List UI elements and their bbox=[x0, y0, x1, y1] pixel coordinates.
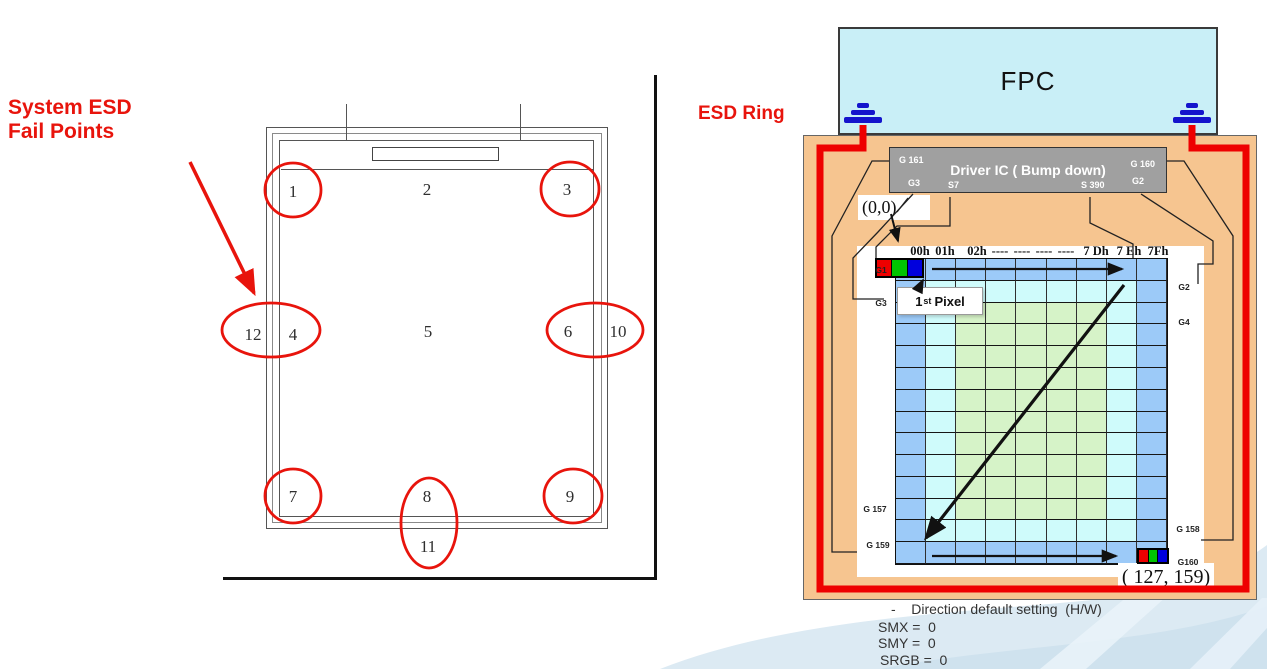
pixel-cell bbox=[1137, 412, 1167, 434]
pin-label-s7: S7 bbox=[948, 180, 959, 190]
pixel-cell bbox=[956, 368, 986, 390]
pin-label-g2: G2 bbox=[1132, 176, 1144, 186]
pixel-cell bbox=[1137, 520, 1167, 542]
col-header-----: ---- bbox=[1014, 244, 1031, 259]
pixel-cell bbox=[1107, 390, 1137, 412]
pixel-cell bbox=[1016, 303, 1046, 325]
pixel-cell bbox=[926, 477, 956, 499]
pixel-cell bbox=[1047, 542, 1077, 564]
wash-streak bbox=[1190, 598, 1267, 669]
ground-icon bbox=[857, 103, 869, 108]
first-pixel-word: Pixel bbox=[934, 294, 964, 309]
pixel-cell bbox=[1077, 412, 1107, 434]
pixel-cell bbox=[1107, 542, 1137, 564]
pixel-cell bbox=[926, 259, 956, 281]
origin-label: (0,0) bbox=[862, 197, 897, 218]
pixel-cell bbox=[1137, 346, 1167, 368]
first-pixel-callout: 1st Pixel bbox=[897, 287, 983, 315]
pixel-cell bbox=[926, 324, 956, 346]
pixel-cell bbox=[1016, 455, 1046, 477]
fail-point-number-11: 11 bbox=[420, 537, 436, 557]
pixel-cell bbox=[1016, 433, 1046, 455]
pixel-cell bbox=[926, 433, 956, 455]
pixel-cell bbox=[1047, 433, 1077, 455]
pixel-cell bbox=[1016, 520, 1046, 542]
speaker-slot bbox=[372, 147, 499, 161]
pixel-cell bbox=[1077, 477, 1107, 499]
pixel-cell bbox=[986, 433, 1016, 455]
col-header-01h: 01h bbox=[935, 244, 954, 259]
col-header-7 Dh: 7 Dh bbox=[1083, 244, 1108, 259]
module-top-tab bbox=[346, 104, 347, 141]
pixel-cell bbox=[1107, 346, 1137, 368]
pixel-cell bbox=[896, 368, 926, 390]
fail-point-number-2: 2 bbox=[423, 180, 432, 200]
pixel-cell bbox=[1077, 455, 1107, 477]
pixel-cell bbox=[986, 281, 1016, 303]
row-label-right-3: G160 bbox=[1178, 557, 1199, 567]
pixel-cell bbox=[956, 324, 986, 346]
ground-icon bbox=[1186, 103, 1198, 108]
pixel-cell bbox=[1137, 259, 1167, 281]
pin-label-g3: G3 bbox=[908, 178, 920, 188]
pixel-cell bbox=[896, 542, 926, 564]
separator-horizontal-line bbox=[223, 577, 657, 580]
pixel-cell bbox=[956, 412, 986, 434]
pixel-cell bbox=[1047, 303, 1077, 325]
pixel-cell bbox=[1107, 520, 1137, 542]
title-line2: Fail Points bbox=[8, 120, 114, 143]
separator-vertical-line bbox=[654, 75, 657, 580]
pixel-cell bbox=[956, 455, 986, 477]
pixel-cell bbox=[1137, 281, 1167, 303]
pixel-cell bbox=[986, 303, 1016, 325]
note-smy: SMY = 0 bbox=[878, 635, 936, 651]
pixel-cell bbox=[1047, 324, 1077, 346]
pixel-cell bbox=[956, 499, 986, 521]
pixel-cell bbox=[986, 346, 1016, 368]
pixel-cell bbox=[896, 433, 926, 455]
pixel-cell bbox=[1016, 412, 1046, 434]
pixel-cell bbox=[1137, 390, 1167, 412]
pixel-cell bbox=[1047, 259, 1077, 281]
pixel-cell bbox=[1047, 281, 1077, 303]
driver-ic-block: Driver IC ( Bump down) G 161 G 160 G3 S7… bbox=[889, 147, 1167, 193]
pixel-cell bbox=[1137, 477, 1167, 499]
pixel-cell bbox=[986, 259, 1016, 281]
pixel-cell bbox=[986, 412, 1016, 434]
pixel-cell bbox=[1016, 324, 1046, 346]
pixel-cell bbox=[1077, 433, 1107, 455]
row-label-left-0: G1 bbox=[875, 265, 886, 275]
pixel-cell bbox=[986, 368, 1016, 390]
pixel-cell bbox=[896, 499, 926, 521]
pixel-cell bbox=[1137, 368, 1167, 390]
pixel-cell bbox=[1047, 346, 1077, 368]
col-header-7Fh: 7Fh bbox=[1148, 244, 1169, 259]
row-label-left-2: G 157 bbox=[863, 504, 886, 514]
module-top-divider bbox=[281, 169, 593, 170]
pixel-cell bbox=[1077, 324, 1107, 346]
esd-ring-label: ESD Ring bbox=[698, 103, 785, 125]
pixel-cell bbox=[1077, 520, 1107, 542]
pixel-cell bbox=[1047, 499, 1077, 521]
ground-icon bbox=[844, 117, 882, 123]
pixel-cell bbox=[1047, 477, 1077, 499]
fail-points-arrow bbox=[190, 162, 254, 293]
col-header-02h: 02h bbox=[967, 244, 986, 259]
row-label-left-3: G 159 bbox=[866, 540, 889, 550]
pin-label-g161: G 161 bbox=[899, 155, 924, 165]
pixel-cell bbox=[1107, 259, 1137, 281]
subpixel-green bbox=[1148, 550, 1158, 562]
ground-icon bbox=[1180, 110, 1204, 115]
left-title: System ESD Fail Points bbox=[8, 96, 132, 144]
module-inner-panel bbox=[279, 140, 594, 517]
fail-point-number-5: 5 bbox=[424, 322, 433, 342]
pixel-cell bbox=[1077, 259, 1107, 281]
pixel-cell bbox=[1107, 303, 1137, 325]
note-smx: SMX = 0 bbox=[878, 619, 936, 635]
pixel-cell bbox=[1047, 368, 1077, 390]
fpc-label: FPC bbox=[1001, 66, 1056, 97]
subpixel-red bbox=[1139, 550, 1148, 562]
fail-point-number-10: 10 bbox=[610, 322, 627, 342]
fpc-block: FPC bbox=[838, 27, 1218, 135]
pixel-cell bbox=[1107, 281, 1137, 303]
col-header-----: ---- bbox=[1058, 244, 1075, 259]
pixel-cell bbox=[1137, 455, 1167, 477]
pixel-cell bbox=[896, 346, 926, 368]
subpixel-blue bbox=[1157, 550, 1167, 562]
row-label-right-1: G4 bbox=[1178, 317, 1189, 327]
module-top-tab bbox=[520, 104, 521, 141]
pixel-cell bbox=[926, 346, 956, 368]
pin-label-g160: G 160 bbox=[1130, 159, 1155, 169]
pixel-cell bbox=[1107, 455, 1137, 477]
pixel-cell bbox=[1137, 499, 1167, 521]
pixel-cell bbox=[896, 455, 926, 477]
pixel-cell bbox=[1077, 281, 1107, 303]
first-pixel-num: 1 bbox=[915, 294, 922, 309]
pin-label-s390: S 390 bbox=[1081, 180, 1105, 190]
pixel-cell bbox=[1016, 368, 1046, 390]
pixel-cell bbox=[1137, 324, 1167, 346]
fail-point-number-6: 6 bbox=[564, 322, 573, 342]
pixel-cell bbox=[926, 542, 956, 564]
pixel-cell bbox=[986, 542, 1016, 564]
subpixel-green bbox=[891, 260, 906, 276]
pixel-cell bbox=[926, 455, 956, 477]
pixel-cell bbox=[956, 433, 986, 455]
ground-icon bbox=[1173, 117, 1211, 123]
pixel-cell bbox=[1047, 390, 1077, 412]
pixel-cell bbox=[956, 390, 986, 412]
pixel-cell bbox=[986, 390, 1016, 412]
col-header-00h: 00h bbox=[910, 244, 929, 259]
ground-icon bbox=[851, 110, 875, 115]
pixel-cell bbox=[926, 520, 956, 542]
pixel-cell bbox=[1107, 477, 1137, 499]
col-header-----: ---- bbox=[992, 244, 1009, 259]
pixel-cell bbox=[1047, 455, 1077, 477]
note-direction: - Direction default setting (H/W) bbox=[891, 601, 1102, 617]
pixel-cell bbox=[956, 259, 986, 281]
driver-ic-label: Driver IC ( Bump down) bbox=[950, 162, 1106, 178]
pixel-cell bbox=[1077, 390, 1107, 412]
end-coordinate-label: ( 127, 159) bbox=[1118, 563, 1214, 592]
pixel-cell bbox=[1107, 499, 1137, 521]
pixel-cell bbox=[986, 324, 1016, 346]
pixel-cell bbox=[1107, 368, 1137, 390]
slide-canvas: System ESD Fail Points ESD Ring FPC Driv… bbox=[0, 0, 1267, 669]
fail-point-number-12: 12 bbox=[245, 325, 262, 345]
pixel-cell bbox=[896, 520, 926, 542]
pixel-cell bbox=[986, 455, 1016, 477]
fail-point-number-1: 1 bbox=[289, 182, 298, 202]
last-pixel-rgb bbox=[1137, 548, 1169, 564]
subpixel-blue bbox=[907, 260, 922, 276]
pixel-cell bbox=[956, 520, 986, 542]
pixel-cell bbox=[896, 477, 926, 499]
pixel-cell bbox=[1016, 499, 1046, 521]
pixel-cell bbox=[1077, 346, 1107, 368]
pixel-cell bbox=[956, 477, 986, 499]
pixel-cell bbox=[926, 368, 956, 390]
fail-point-number-3: 3 bbox=[563, 180, 572, 200]
pixel-cell bbox=[926, 412, 956, 434]
col-header-7 Eh: 7 Eh bbox=[1117, 244, 1142, 259]
title-line1: System ESD bbox=[8, 96, 132, 119]
pixel-cell bbox=[926, 499, 956, 521]
pixel-cell bbox=[896, 412, 926, 434]
pixel-cell bbox=[1077, 499, 1107, 521]
pixel-cell bbox=[1137, 303, 1167, 325]
pixel-cell bbox=[1016, 542, 1046, 564]
fail-point-number-7: 7 bbox=[289, 487, 298, 507]
pixel-cell bbox=[986, 520, 1016, 542]
note-srgb: SRGB = 0 bbox=[880, 652, 947, 668]
fail-point-number-4: 4 bbox=[289, 325, 298, 345]
row-label-left-1: G3 bbox=[875, 298, 886, 308]
pixel-cell bbox=[956, 542, 986, 564]
pixel-cell bbox=[1107, 433, 1137, 455]
pixel-cell bbox=[1077, 542, 1107, 564]
row-label-right-0: G2 bbox=[1178, 282, 1189, 292]
pixel-cell bbox=[1016, 259, 1046, 281]
pixel-cell bbox=[926, 390, 956, 412]
pixel-cell bbox=[1047, 520, 1077, 542]
pixel-cell bbox=[986, 499, 1016, 521]
pixel-cell bbox=[1107, 324, 1137, 346]
pixel-cell bbox=[1077, 303, 1107, 325]
pixel-cell bbox=[896, 324, 926, 346]
fail-point-number-8: 8 bbox=[423, 487, 432, 507]
pixel-cell bbox=[1016, 281, 1046, 303]
pixel-cell bbox=[956, 346, 986, 368]
pixel-cell bbox=[1016, 346, 1046, 368]
pixel-cell bbox=[986, 477, 1016, 499]
pixel-cell bbox=[1077, 368, 1107, 390]
fail-point-number-9: 9 bbox=[566, 487, 575, 507]
pixel-cell bbox=[1137, 433, 1167, 455]
pixel-cell bbox=[896, 390, 926, 412]
pixel-cell bbox=[1016, 390, 1046, 412]
row-label-right-2: G 158 bbox=[1176, 524, 1199, 534]
col-header-----: ---- bbox=[1036, 244, 1053, 259]
pixel-cell bbox=[1016, 477, 1046, 499]
first-pixel-sup: st bbox=[923, 296, 931, 306]
pixel-cell bbox=[1107, 412, 1137, 434]
pixel-cell bbox=[1047, 412, 1077, 434]
